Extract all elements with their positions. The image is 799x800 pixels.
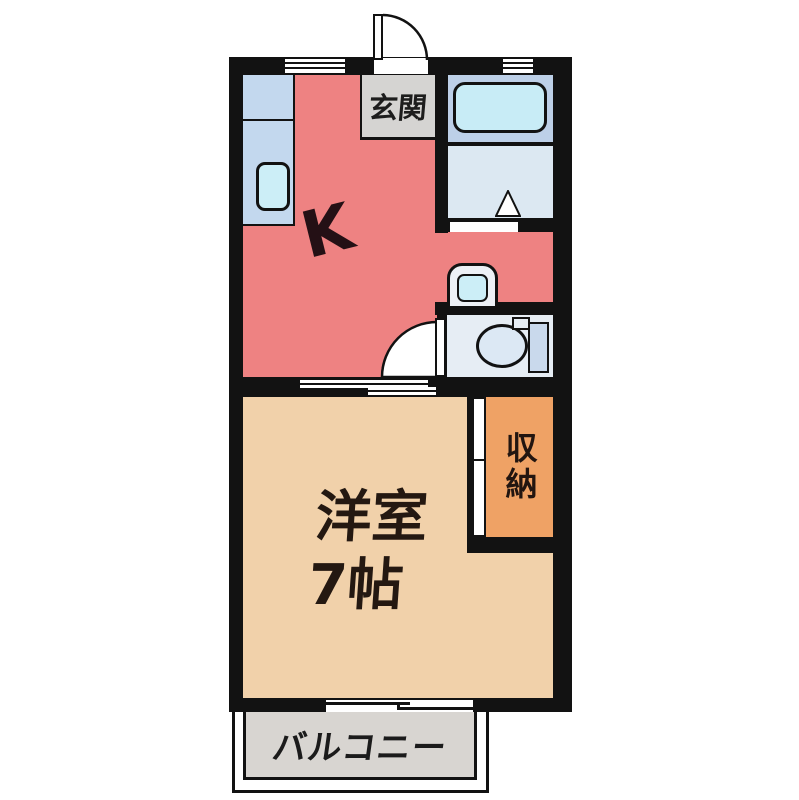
toilet-bowl-icon [476,324,528,368]
sliding-door-panel-2 [368,387,436,395]
washroom-door-opening [450,222,518,232]
wall-entrance-bath [435,57,448,233]
toilet-tank-icon [528,322,549,373]
entrance-door-swing-icon [382,13,430,61]
western-room-size-label: 7帖 [293,540,419,621]
kitchen-counter-divider [243,119,295,121]
toilet-door-swing-icon [379,319,439,379]
window-balcony-icon [326,700,473,712]
entrance-area: 玄関 [360,75,435,140]
washroom-door-icon [495,190,521,218]
balcony-area: バルコニー [243,702,477,780]
storage-label: 収納 [497,431,543,503]
wall-left [229,57,243,712]
balcony-label: バルコニー [269,720,450,769]
toilet-door-leaf [435,318,446,377]
washbasin-bowl-icon [457,274,488,302]
wall-closet-bottom [467,537,553,553]
bathtub [453,82,547,133]
floor-plan: バルコニー 玄関 収納 [0,0,799,800]
wall-right [553,57,572,712]
entrance-label: 玄関 [368,85,430,127]
kitchen-sink [256,162,290,211]
window-bathroom-icon [503,59,533,73]
storage-door [472,397,486,537]
window-kitchen-icon [285,59,345,73]
storage-area: 収納 [486,397,553,537]
